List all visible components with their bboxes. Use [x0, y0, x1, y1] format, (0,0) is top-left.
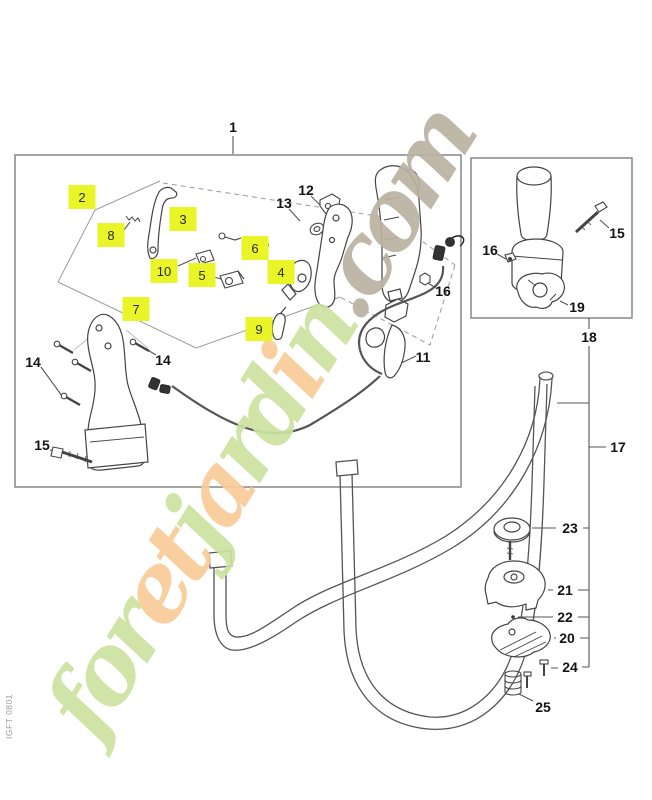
part-label-9: 9: [246, 317, 273, 341]
part-label-22: 22: [557, 610, 573, 624]
part-label-12: 12: [298, 183, 314, 197]
part-label-14: 14: [155, 353, 171, 367]
part-label-13: 13: [276, 196, 292, 210]
part-label-20: 20: [559, 631, 575, 645]
part-label-16: 16: [482, 243, 498, 257]
part-label-23: 23: [562, 521, 578, 535]
part-label-3: 3: [170, 207, 197, 231]
part-label-17: 17: [610, 440, 626, 454]
part-label-19: 19: [569, 300, 585, 314]
part-label-25: 25: [535, 700, 551, 714]
part-label-6: 6: [242, 236, 269, 260]
part-label-8: 8: [98, 223, 125, 247]
part-label-5: 5: [189, 263, 216, 287]
part-label-7: 7: [123, 297, 150, 321]
part-label-1: 1: [229, 120, 237, 134]
parts-diagram-page: foretjardin.com 128310564791213161114141…: [0, 0, 652, 800]
part-label-2: 2: [69, 185, 96, 209]
part-label-21: 21: [557, 583, 573, 597]
callout-labels: 1283105647912131611141415151619181723212…: [0, 0, 652, 800]
part-label-14: 14: [25, 355, 41, 369]
part-label-24: 24: [562, 660, 578, 674]
part-label-4: 4: [268, 260, 295, 284]
part-label-11: 11: [416, 350, 431, 364]
part-label-18: 18: [581, 330, 597, 344]
part-label-15: 15: [609, 226, 625, 240]
part-label-15: 15: [34, 438, 50, 452]
part-label-16: 16: [435, 284, 451, 298]
part-label-10: 10: [151, 259, 178, 283]
